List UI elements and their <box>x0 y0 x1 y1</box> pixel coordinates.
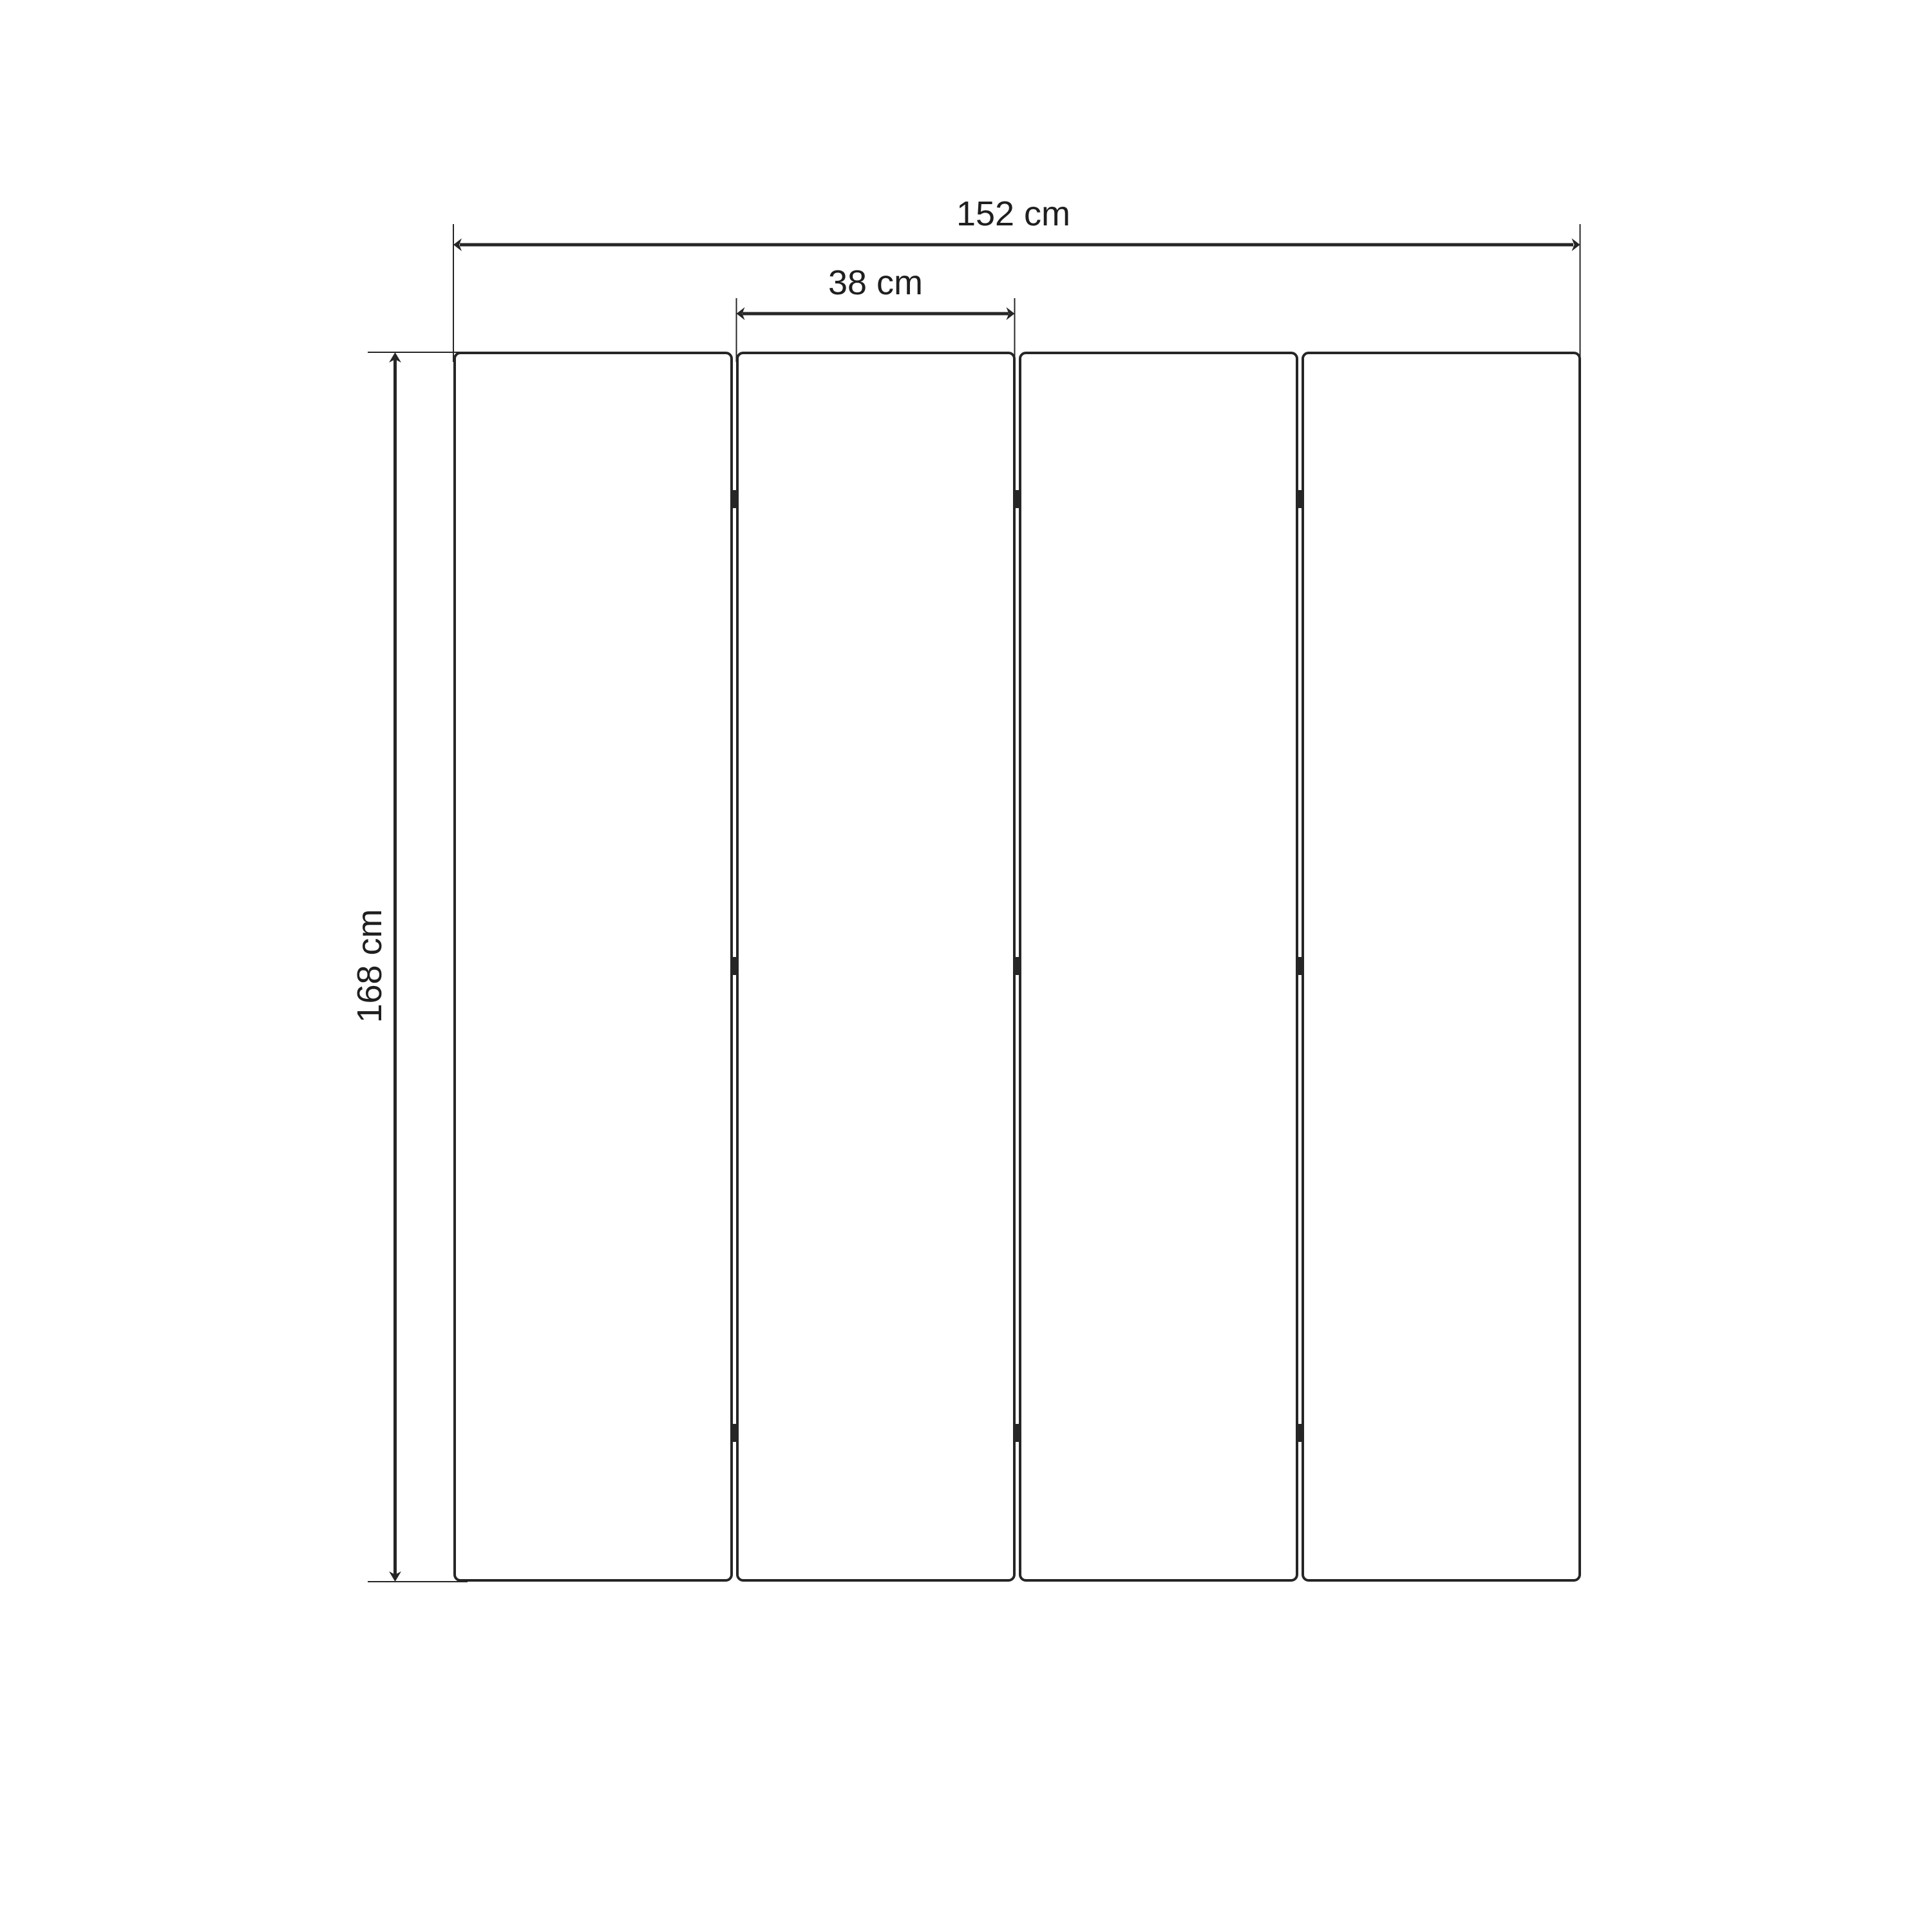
svg-text:168 cm: 168 cm <box>350 909 389 1023</box>
svg-text:152 cm: 152 cm <box>956 194 1070 233</box>
svg-text:38 cm: 38 cm <box>828 263 923 302</box>
